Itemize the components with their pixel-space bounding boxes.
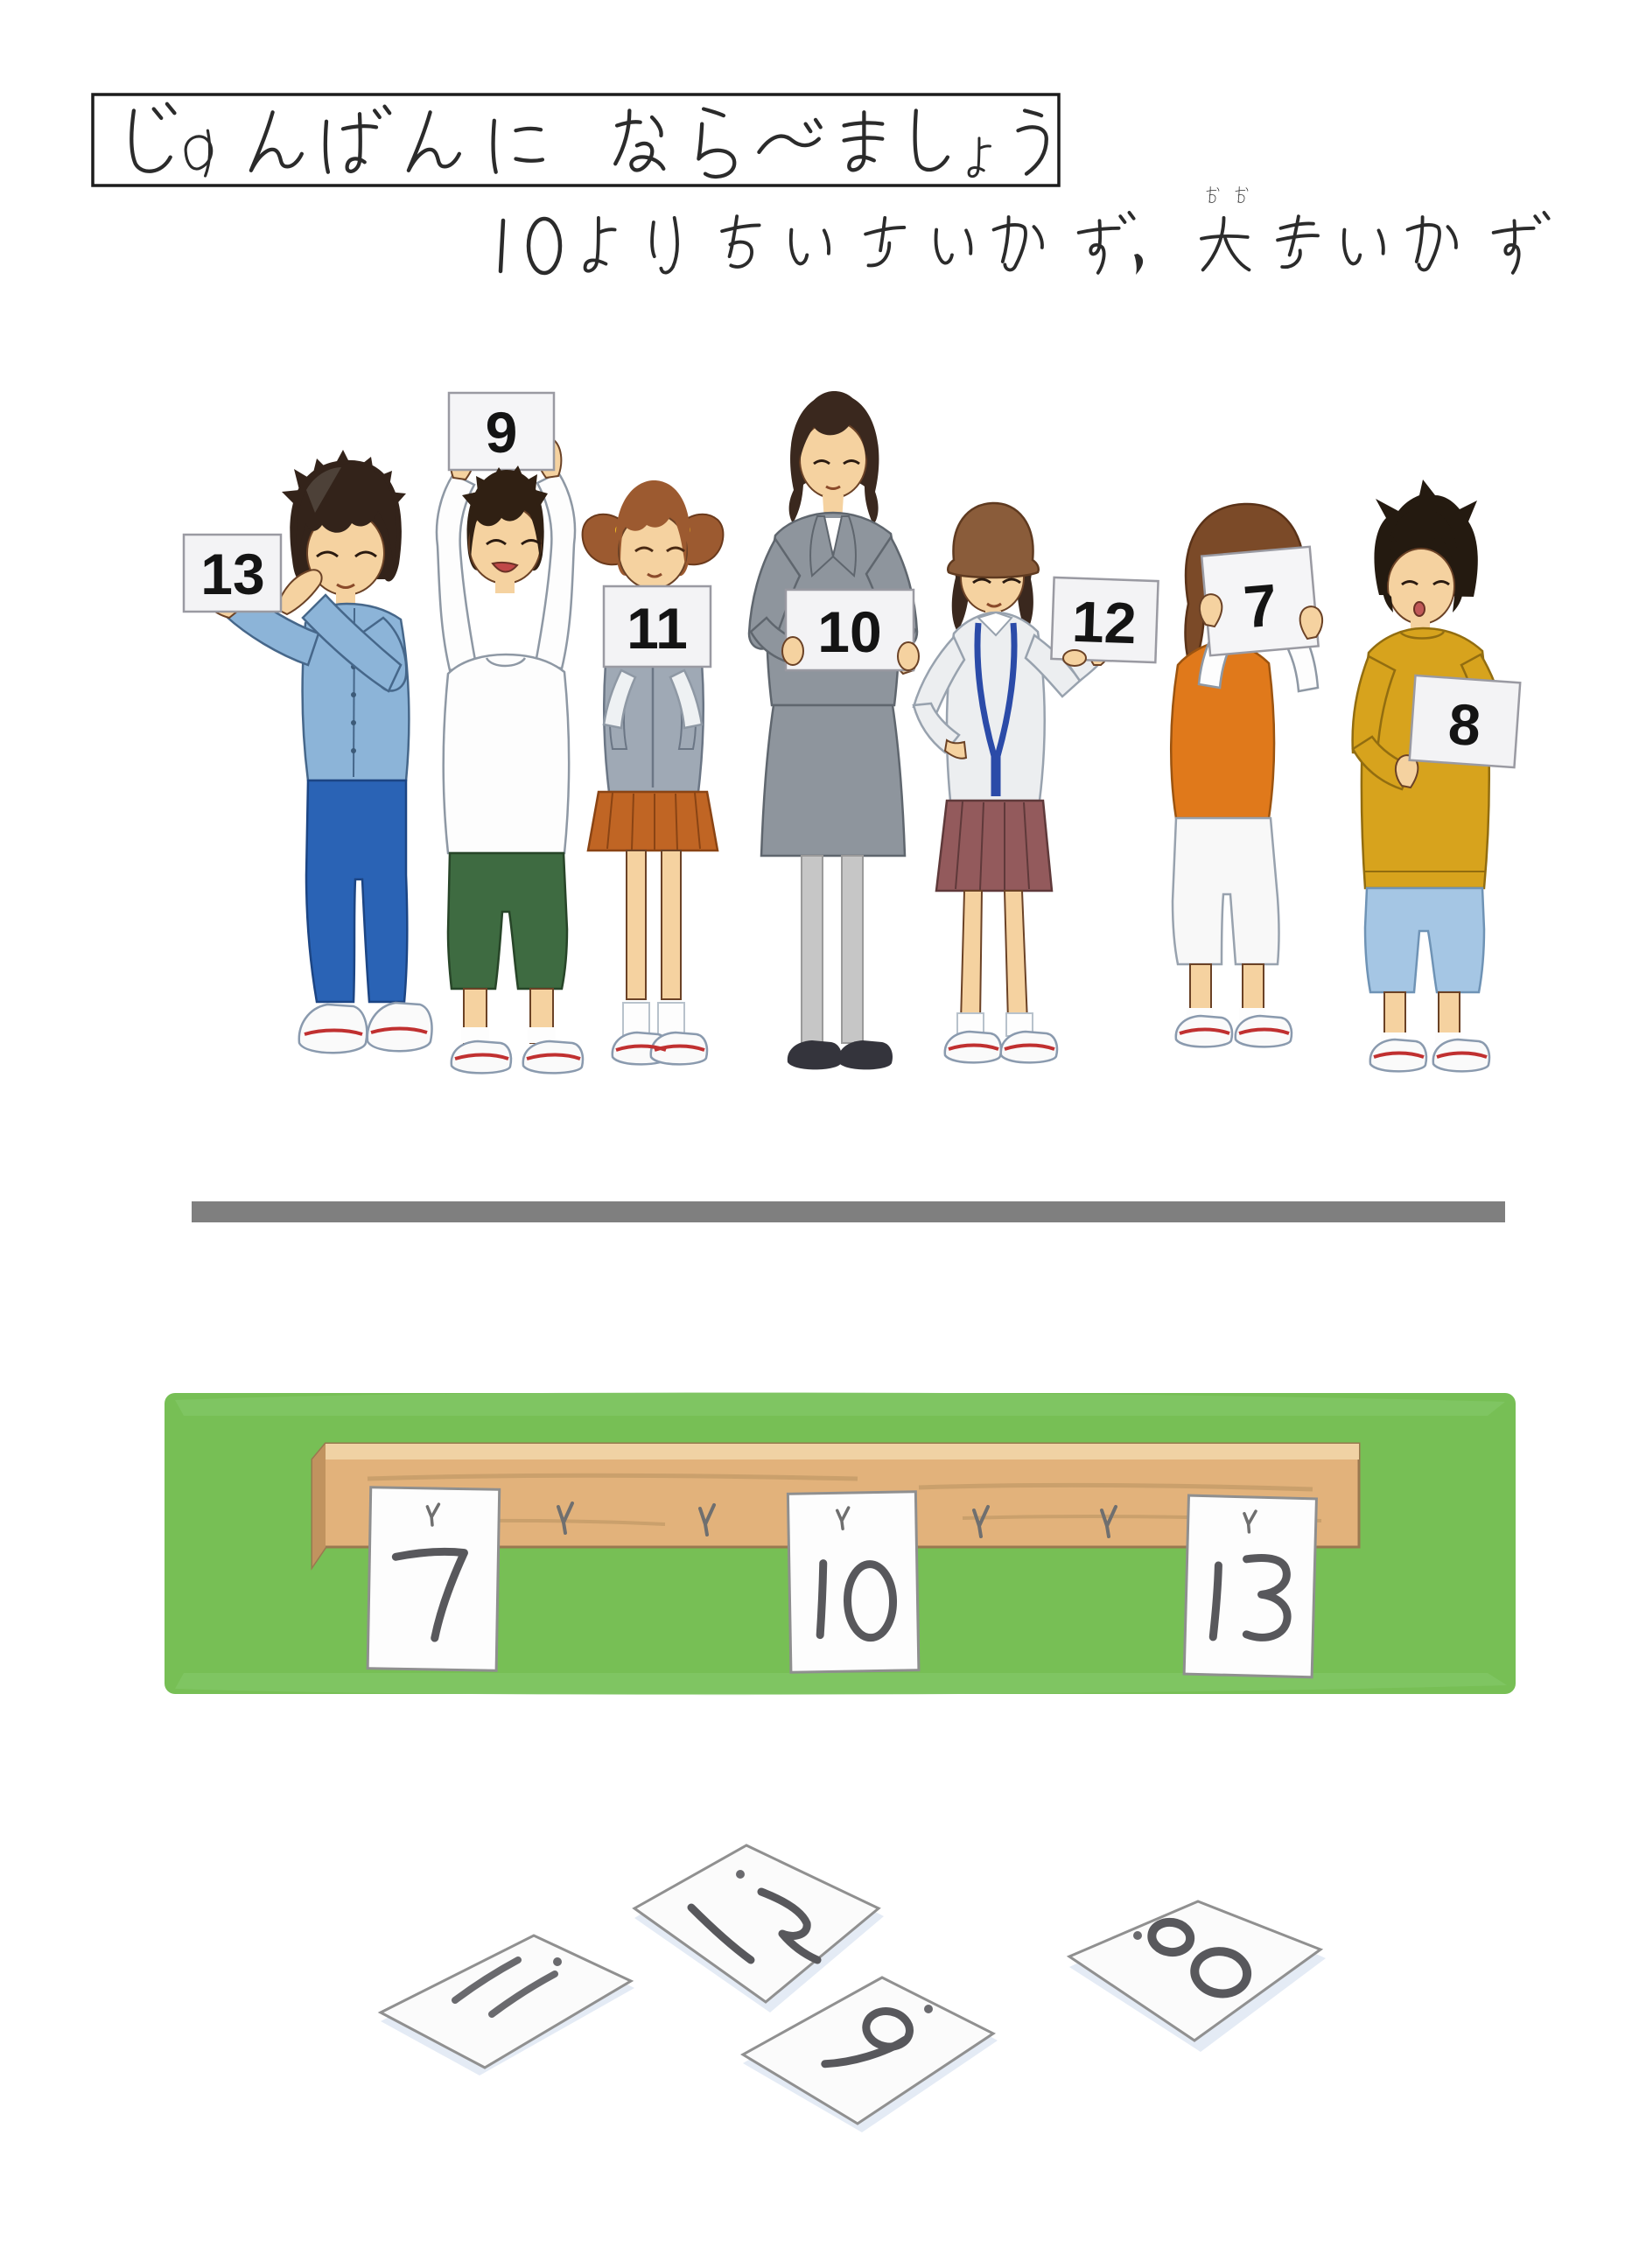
svg-text:10: 10 xyxy=(817,599,881,664)
svg-text:9: 9 xyxy=(486,400,518,465)
svg-text:11: 11 xyxy=(627,596,688,661)
svg-text:8: 8 xyxy=(1446,691,1483,758)
svg-text:12: 12 xyxy=(1071,589,1138,656)
svg-text:7: 7 xyxy=(1241,571,1279,640)
svg-text:13: 13 xyxy=(200,542,264,606)
